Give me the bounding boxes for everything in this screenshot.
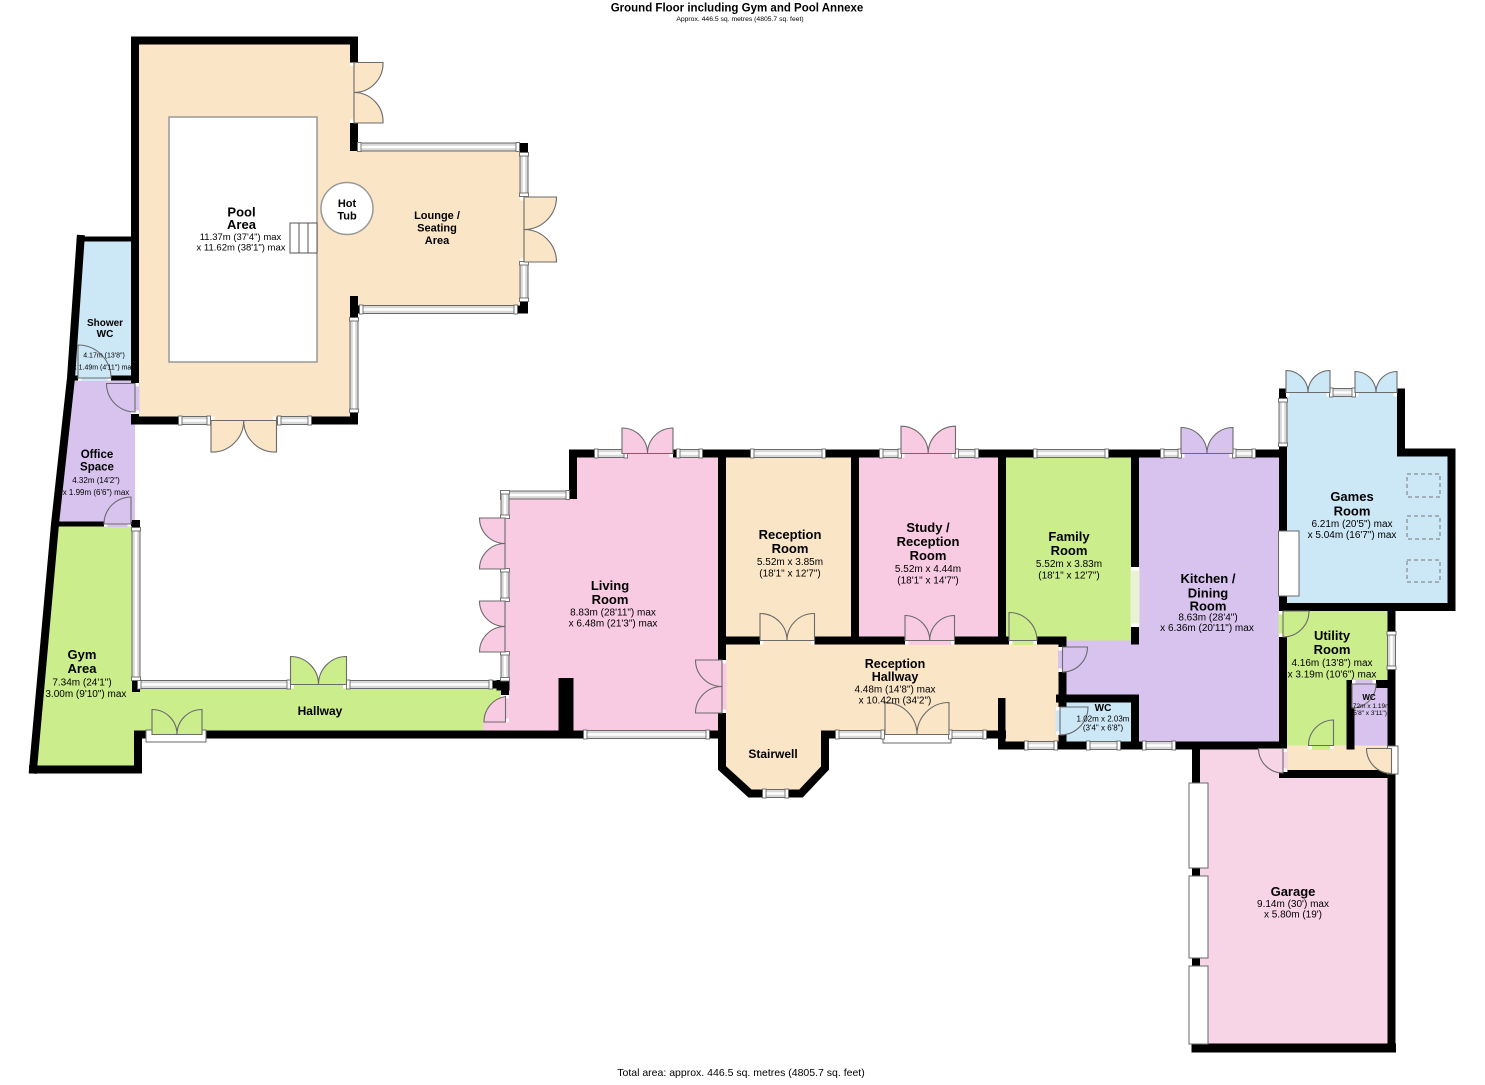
- svg-text:11.37m (37'4") max: 11.37m (37'4") max: [200, 232, 282, 243]
- svg-text:4.17m (13'8"): 4.17m (13'8"): [83, 353, 125, 360]
- svg-text:x 11.62m (38'1") max: x 11.62m (38'1") max: [197, 243, 286, 254]
- svg-text:Reception: Reception: [897, 534, 960, 549]
- svg-text:x 3.19m (10'6") max: x 3.19m (10'6") max: [1288, 670, 1377, 681]
- svg-text:4.16m (13'8") max: 4.16m (13'8") max: [1291, 658, 1372, 669]
- svg-text:Room: Room: [1051, 543, 1088, 558]
- svg-text:Approx. 446.5 sq. metres (4805: Approx. 446.5 sq. metres (4805.7 sq. fee…: [676, 16, 803, 23]
- svg-text:Kitchen /: Kitchen /: [1181, 571, 1236, 586]
- svg-text:Living: Living: [591, 578, 629, 593]
- svg-text:(3'4" x 6'8"): (3'4" x 6'8"): [1083, 724, 1124, 733]
- svg-text:Space: Space: [80, 462, 114, 474]
- svg-text:Study /: Study /: [906, 520, 950, 535]
- svg-text:Tub: Tub: [337, 211, 357, 223]
- svg-text:Ground Floor including Gym and: Ground Floor including Gym and Pool Anne…: [611, 3, 864, 15]
- svg-text:Room: Room: [910, 548, 947, 563]
- svg-text:x 6.48m (21'3") max: x 6.48m (21'3") max: [569, 619, 658, 630]
- svg-text:4.32m (14'2"): 4.32m (14'2"): [72, 476, 120, 485]
- svg-text:Reception: Reception: [759, 527, 822, 542]
- svg-text:6.21m (20'5") max: 6.21m (20'5") max: [1311, 519, 1392, 530]
- svg-text:Hallway: Hallway: [872, 670, 919, 684]
- svg-text:WC: WC: [97, 329, 114, 340]
- svg-text:5.52m x 4.44m: 5.52m x 4.44m: [895, 564, 961, 575]
- svg-text:(18'1" x 12'7"): (18'1" x 12'7"): [1038, 571, 1100, 582]
- svg-text:4.48m (14'8") max: 4.48m (14'8") max: [854, 685, 935, 696]
- svg-text:8.83m (28'11") max: 8.83m (28'11") max: [570, 608, 656, 619]
- svg-text:WC: WC: [1362, 693, 1376, 702]
- svg-text:Office: Office: [81, 449, 114, 461]
- svg-text:5.52m x 3.83m: 5.52m x 3.83m: [1036, 559, 1102, 570]
- svg-text:Gym: Gym: [68, 647, 97, 662]
- svg-text:9.14m (30') max: 9.14m (30') max: [1257, 899, 1329, 910]
- svg-text:x 5.80m (19'): x 5.80m (19'): [1264, 910, 1322, 921]
- svg-text:Reception: Reception: [865, 657, 925, 671]
- svg-text:Family: Family: [1048, 529, 1090, 544]
- svg-text:Stairwell: Stairwell: [748, 747, 797, 761]
- svg-text:(5'8" x 3'11"): (5'8" x 3'11"): [1351, 710, 1387, 717]
- svg-text:8.63m (28'4"): 8.63m (28'4"): [1178, 613, 1237, 624]
- svg-text:x 5.04m (16'7") max: x 5.04m (16'7") max: [1308, 530, 1397, 541]
- svg-text:Room: Room: [1190, 599, 1227, 614]
- svg-text:x 6.36m (20'11") max: x 6.36m (20'11") max: [1160, 623, 1254, 634]
- svg-text:Garage: Garage: [1271, 884, 1316, 899]
- svg-text:Room: Room: [772, 541, 809, 556]
- svg-text:(18'1" x 12'7"): (18'1" x 12'7"): [759, 569, 821, 580]
- svg-text:Room: Room: [1314, 642, 1351, 657]
- svg-text:Utility: Utility: [1314, 628, 1351, 643]
- svg-text:1.02m x 2.03m: 1.02m x 2.03m: [1077, 715, 1130, 724]
- svg-text:Hot: Hot: [338, 198, 357, 210]
- svg-text:Games: Games: [1330, 489, 1373, 504]
- svg-text:Area: Area: [68, 661, 98, 676]
- svg-text:Area: Area: [425, 235, 450, 247]
- svg-text:Hallway: Hallway: [298, 704, 343, 718]
- svg-text:WC: WC: [1095, 703, 1112, 714]
- svg-text:x 1.49m (4'11") max: x 1.49m (4'11") max: [73, 365, 135, 372]
- svg-text:x 10.42m (34'2"): x 10.42m (34'2"): [859, 696, 932, 707]
- svg-text:(18'1" x 14'7"): (18'1" x 14'7"): [897, 576, 959, 587]
- svg-text:Seating: Seating: [417, 223, 457, 235]
- svg-text:5.52m x 3.85m: 5.52m x 3.85m: [757, 557, 823, 568]
- svg-text:Lounge /: Lounge /: [414, 210, 460, 222]
- svg-text:Room: Room: [592, 592, 629, 607]
- svg-text:Area: Area: [227, 217, 257, 232]
- svg-text:Total area: approx. 446.5 sq.: Total area: approx. 446.5 sq. metres (48…: [617, 1067, 864, 1079]
- svg-text:7.34m (24'1"): 7.34m (24'1"): [52, 678, 111, 689]
- svg-text:Shower: Shower: [87, 318, 123, 329]
- svg-text:x 1.99m (6'6") max: x 1.99m (6'6") max: [63, 488, 130, 497]
- svg-text:Room: Room: [1334, 504, 1371, 519]
- svg-text:x 3.00m (9'10") max: x 3.00m (9'10") max: [38, 689, 127, 700]
- svg-text:1.72m x 1.19m: 1.72m x 1.19m: [1348, 703, 1391, 710]
